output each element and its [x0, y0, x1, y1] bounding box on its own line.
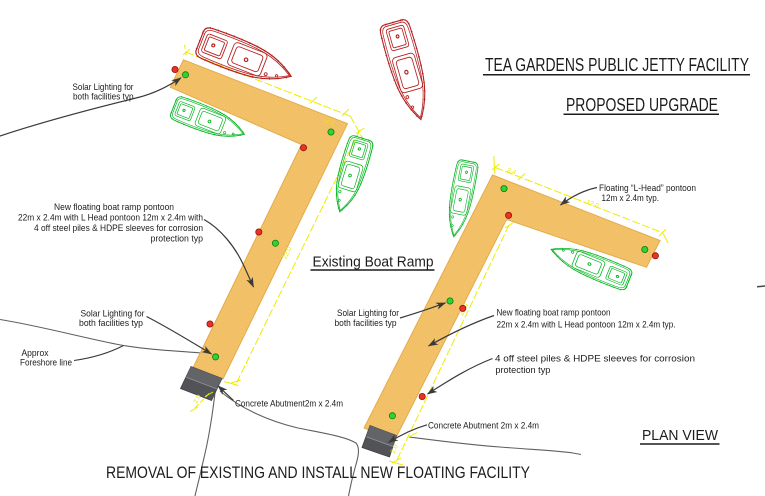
svg-text:both facilities typ: both facilities typ	[73, 92, 134, 103]
svg-text:Concrete Abutment 2m x 2.4m: Concrete Abutment 2m x 2.4m	[428, 421, 539, 432]
svg-text:PROPOSED UPGRADE: PROPOSED UPGRADE	[566, 95, 718, 115]
svg-text:4 off steel piles & HDPE sleev: 4 off steel piles & HDPE sleeves for cor…	[34, 223, 203, 234]
svg-text:Concrete Abutment2m x 2.4m: Concrete Abutment2m x 2.4m	[235, 399, 343, 410]
svg-text:New floating boat ramp pontoon: New floating boat ramp pontoon	[497, 308, 611, 319]
svg-text:protection typ: protection typ	[151, 234, 204, 245]
svg-text:12m x 2.4m typ.: 12m x 2.4m typ.	[602, 193, 660, 204]
svg-text:both facilities typ: both facilities typ	[79, 318, 143, 329]
svg-text:22m x 2.4m with L Head pontoon: 22m x 2.4m with L Head pontoon 12m x 2.4…	[18, 213, 203, 224]
svg-text:REMOVAL OF EXISTING AND INSTAL: REMOVAL OF EXISTING AND INSTALL NEW FLOA…	[106, 464, 530, 482]
svg-text:Existing Boat Ramp: Existing Boat Ramp	[313, 254, 434, 271]
svg-text:4 off steel piles & HDPE sleev: 4 off steel piles & HDPE sleeves for cor…	[495, 354, 695, 365]
svg-text:22m x 2.4m with L Head pontoon: 22m x 2.4m with L Head pontoon 12m x 2.4…	[497, 320, 676, 331]
svg-text:Foreshore line: Foreshore line	[20, 358, 72, 369]
svg-text:protection typ: protection typ	[495, 365, 550, 376]
svg-text:both facilities typ: both facilities typ	[335, 318, 397, 329]
svg-text:PLAN VIEW: PLAN VIEW	[642, 427, 719, 444]
svg-text:TEA GARDENS PUBLIC JETTY FACIL: TEA GARDENS PUBLIC JETTY FACILITY	[485, 55, 749, 75]
svg-text:New floating boat ramp pontoon: New floating boat ramp pontoon	[54, 202, 174, 213]
